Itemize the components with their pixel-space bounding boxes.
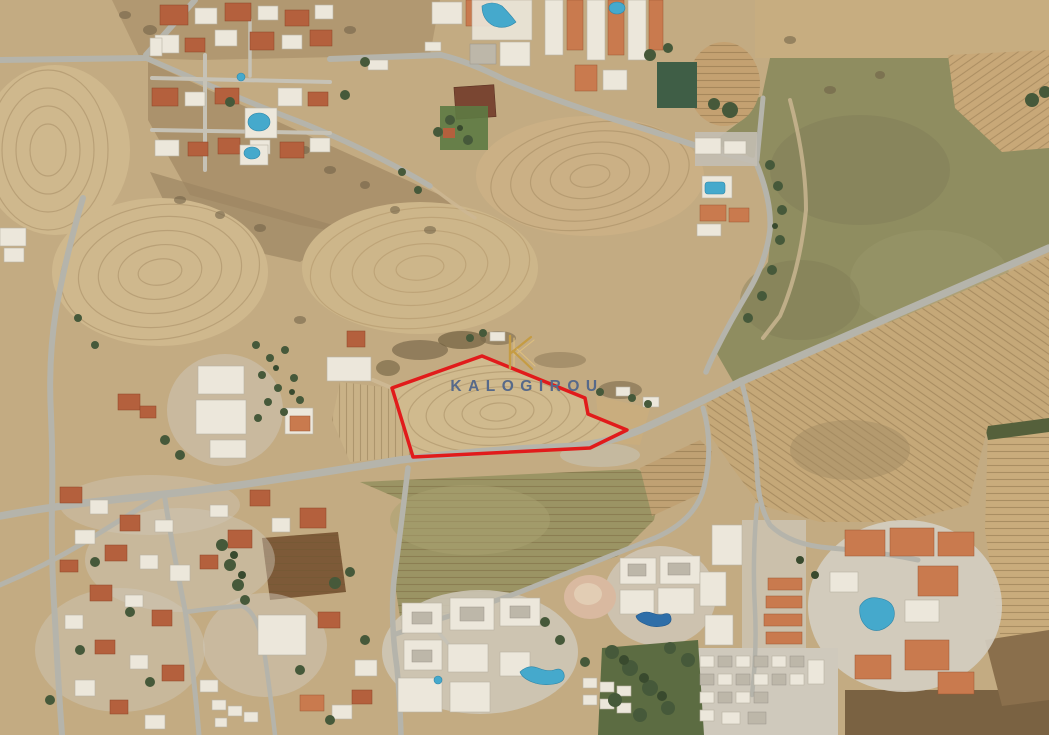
- pool: [248, 113, 270, 131]
- brand-watermark-text: KALOGIROU: [450, 378, 603, 395]
- pool: [609, 2, 625, 14]
- satellite-map: KALOGIROU: [0, 0, 1049, 735]
- pool: [244, 147, 260, 159]
- pool: [705, 182, 725, 194]
- pool: [434, 676, 442, 684]
- sports-court: [657, 62, 697, 108]
- pool: [237, 73, 245, 81]
